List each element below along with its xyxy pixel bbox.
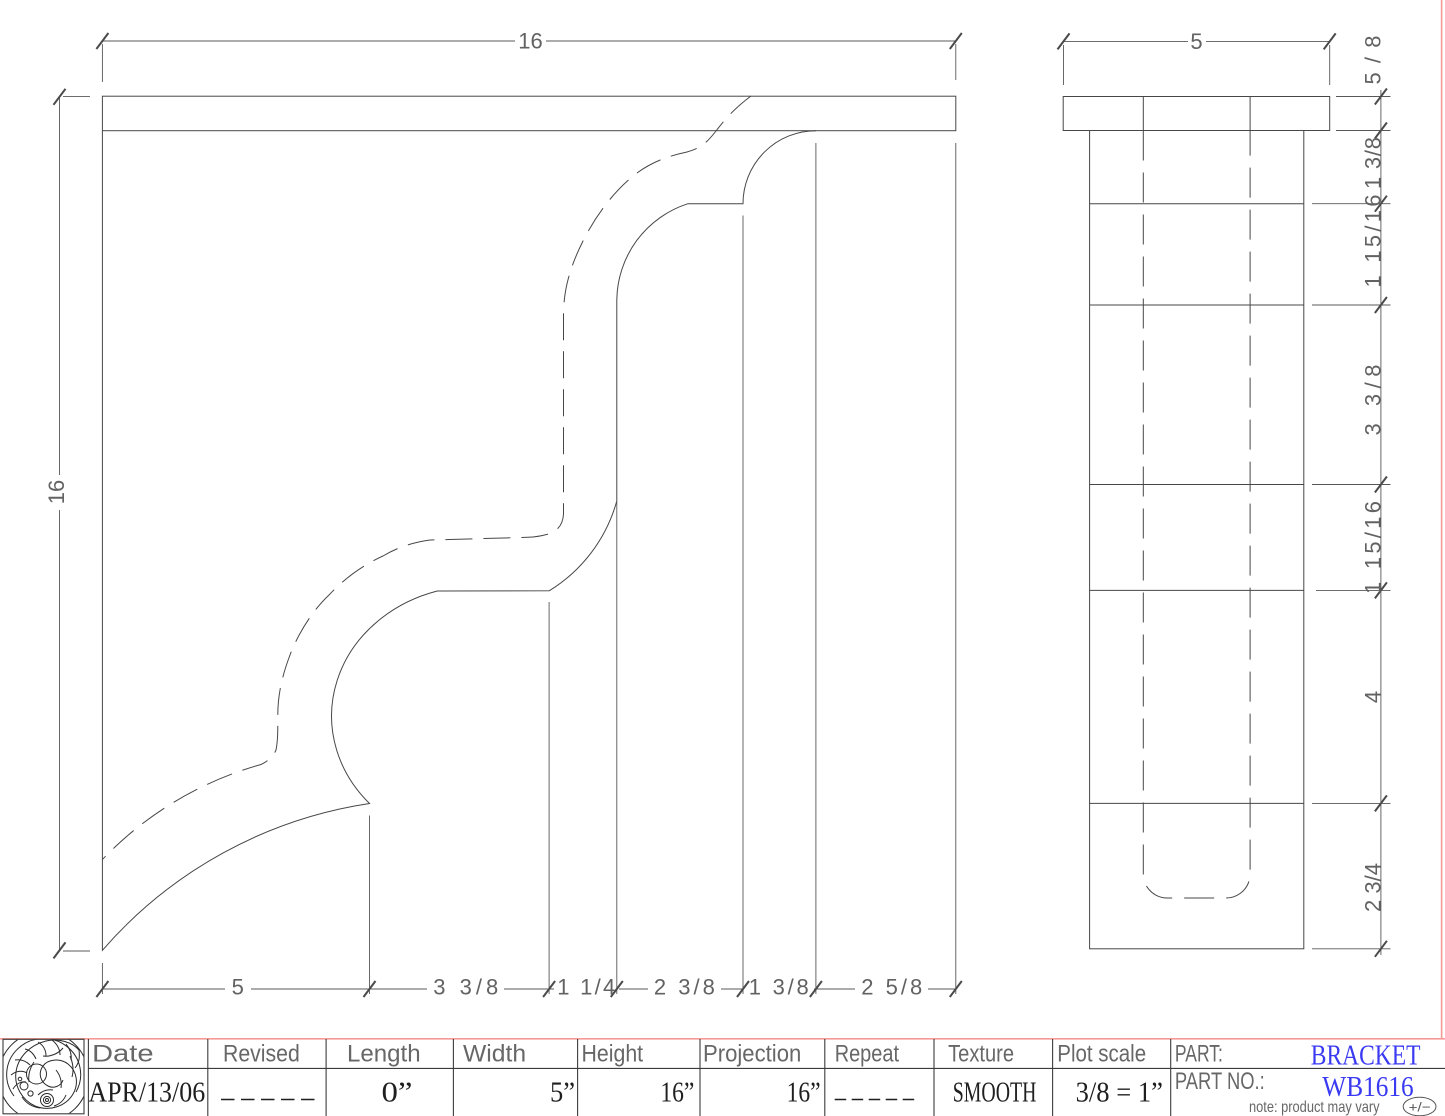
svg-text:Repeat: Repeat (835, 1040, 900, 1067)
svg-text:2 3/4: 2 3/4 (1361, 863, 1386, 912)
svg-text:APR/13/06: APR/13/06 (88, 1078, 205, 1109)
svg-text:Date: Date (92, 1040, 154, 1067)
svg-text:5: 5 (232, 974, 244, 999)
svg-text:Length: Length (347, 1040, 421, 1067)
svg-text:3/8 = 1”: 3/8 = 1” (1076, 1078, 1163, 1109)
svg-text:16: 16 (44, 480, 69, 504)
svg-text:Plot scale: Plot scale (1057, 1040, 1146, 1067)
svg-text:5: 5 (1190, 29, 1202, 54)
svg-text:PART:: PART: (1175, 1040, 1223, 1067)
svg-text:1 3/8: 1 3/8 (749, 974, 809, 999)
svg-text:Width: Width (463, 1040, 526, 1067)
svg-text:Texture: Texture (948, 1040, 1014, 1067)
svg-text:1 1/4: 1 1/4 (557, 974, 615, 999)
svg-text:Revised: Revised (223, 1040, 300, 1067)
svg-text:1 3/8: 1 3/8 (1361, 137, 1386, 189)
svg-text:5”: 5” (550, 1078, 575, 1109)
svg-text:Projection: Projection (703, 1040, 801, 1067)
svg-text:BRACKET: BRACKET (1311, 1040, 1421, 1072)
svg-text:SMOOTH: SMOOTH (953, 1078, 1037, 1109)
svg-text:PART NO.:: PART NO.: (1175, 1068, 1265, 1095)
svg-text:Height: Height (582, 1040, 644, 1067)
svg-text:16”: 16” (660, 1078, 694, 1109)
svg-text:2 3/8: 2 3/8 (654, 974, 715, 999)
svg-text:0”: 0” (382, 1078, 413, 1109)
svg-text:4: 4 (1361, 691, 1386, 703)
svg-text:16”: 16” (787, 1078, 821, 1109)
svg-text:16: 16 (518, 29, 542, 54)
svg-text:5/8: 5/8 (1361, 36, 1386, 85)
svg-text:3 3/8: 3 3/8 (433, 974, 498, 999)
svg-text:3 3/8: 3 3/8 (1361, 365, 1386, 436)
svg-text:2 5/8: 2 5/8 (861, 974, 922, 999)
svg-text:WB1616: WB1616 (1322, 1071, 1413, 1103)
